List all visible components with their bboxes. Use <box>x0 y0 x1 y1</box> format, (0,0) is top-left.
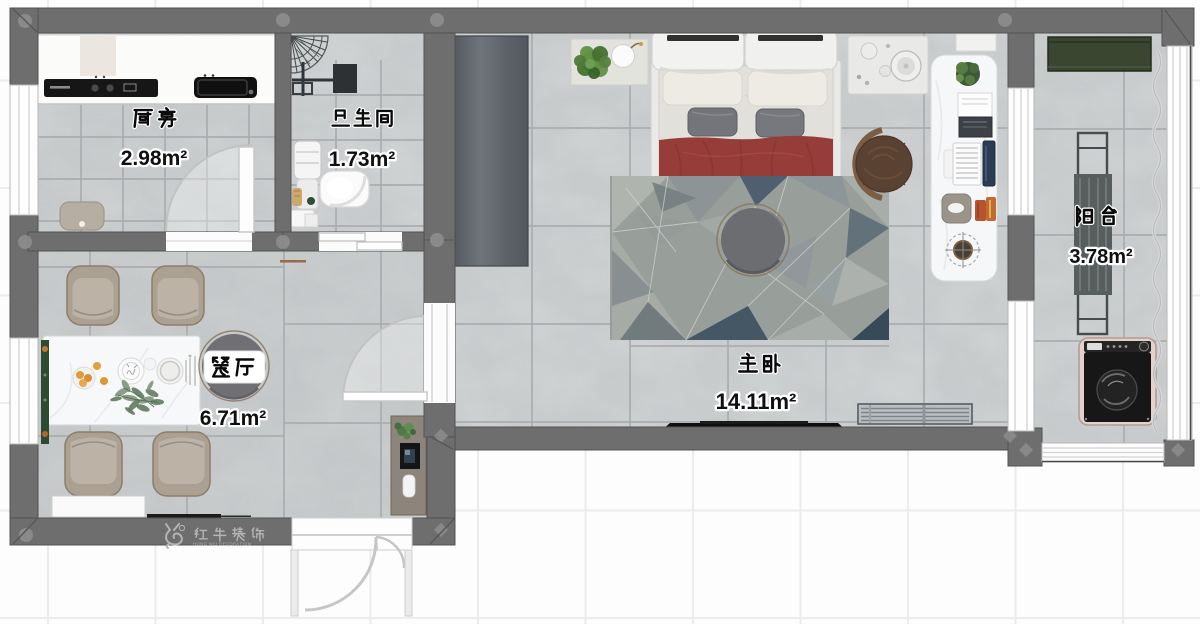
svg-text:6.71m²: 6.71m² <box>200 407 267 430</box>
svg-text:HONG NIU DECORATION: HONG NIU DECORATION <box>193 542 251 547</box>
svg-text:3.78m²: 3.78m² <box>1069 246 1133 268</box>
svg-text:1.73m²: 1.73m² <box>329 148 396 171</box>
svg-text:2.98m²: 2.98m² <box>121 147 188 170</box>
svg-text:14.11m²: 14.11m² <box>716 389 797 414</box>
